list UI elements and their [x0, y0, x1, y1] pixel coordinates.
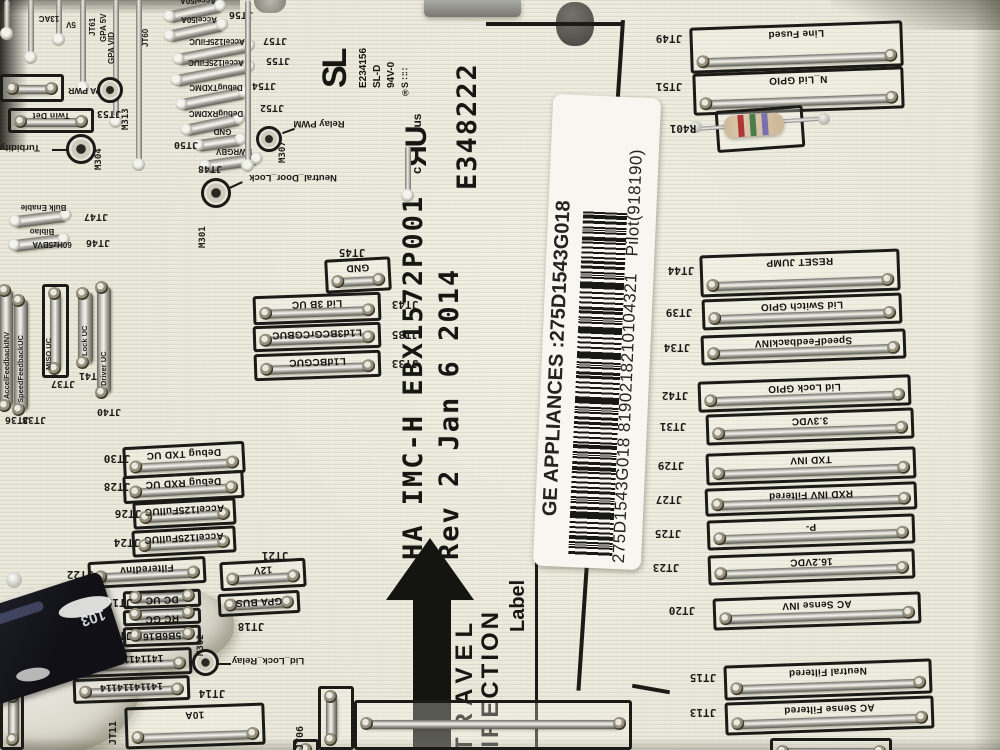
tinned-wire	[4, 0, 10, 34]
label-callout: Label	[507, 574, 533, 632]
connector-JT15: Neutral Filtered	[723, 658, 932, 700]
relay-pad-M301	[201, 178, 231, 208]
ul-file-number: E348222	[452, 62, 488, 190]
ul-mark-us: us	[410, 114, 424, 128]
connector-ref: JT34	[658, 341, 696, 354]
jumper-ref: JT47	[80, 211, 112, 222]
relay-label: Lid_Lock_Relay	[222, 655, 314, 666]
vertical-jumper-ref: JT40	[92, 406, 126, 417]
jumper-label: 60Hz5BVA	[12, 240, 92, 249]
barcode-sticker: GE APPLIANCES :275D1543G018 275D1543G018…	[533, 94, 661, 570]
mfr-date-code: S ∷∷	[400, 42, 414, 88]
jumper-ref: JT55	[262, 55, 294, 66]
solder-pad-top	[254, 0, 286, 13]
wire-label: JT61	[88, 2, 98, 36]
border-line-horizontal	[486, 22, 623, 26]
jumper-label: Biblao	[10, 227, 74, 236]
connector-ref: JT24	[108, 536, 146, 549]
vertical-jumper-label: AccelFeedbackINV	[2, 301, 13, 399]
connector-JT34: SpeedFeedbackINV	[701, 328, 907, 365]
wire-label: JT60	[141, 13, 151, 47]
tinned-wire	[405, 146, 411, 196]
jumper-ref: JT52	[256, 102, 288, 113]
connector-JT43: Lid 3B UC	[253, 292, 382, 325]
jumper-label: Accel50A	[165, 0, 231, 5]
jumper-label: Accel50A	[165, 15, 233, 24]
relay-ref: M301	[198, 212, 210, 248]
connector-ref: JT15	[684, 671, 722, 684]
capacitor-sheen	[0, 600, 45, 631]
connector-JT44: RESET JUMP	[699, 249, 900, 298]
relay-label-line	[218, 663, 231, 665]
relay-pad-M304	[66, 134, 96, 164]
connector-JT21: 12V	[219, 558, 306, 591]
connector-ref: JT20	[663, 604, 701, 617]
connector-ref: JT18	[232, 620, 270, 633]
jumper-ref: JT48	[194, 163, 226, 174]
partial-connector	[318, 686, 354, 750]
registered-icon: ®	[402, 88, 409, 98]
connector-label: 10A	[127, 707, 261, 723]
board-model-text: HA IMC-H EBX1572P001	[398, 180, 436, 560]
connector-ref: JT44	[662, 264, 700, 277]
jumper-ref: JT57	[259, 35, 291, 46]
resistor-band	[761, 113, 769, 135]
connector-ref: JT31	[654, 420, 692, 433]
wire-label: 5V	[60, 20, 82, 29]
connector-label: Twin Det	[11, 111, 91, 121]
connector-ref: JT42	[656, 389, 694, 402]
connector-pin-bar	[11, 85, 53, 94]
vertical-jumper-label: MISO UC	[44, 296, 55, 370]
connector-JT29: TXD INV	[706, 446, 917, 485]
connector-pin-bar	[326, 695, 337, 741]
jumper-label: PWRGBV	[201, 147, 267, 156]
connector-JT31: 3.3VDC	[706, 407, 915, 445]
tinned-wire	[80, 0, 86, 88]
vertical-jumper-ref: JT38	[17, 414, 51, 425]
connector-pin-bar	[136, 730, 254, 743]
relay-pad-M313	[97, 77, 123, 103]
metal-bracket	[424, 0, 521, 17]
connector-ref: JT23	[647, 561, 685, 574]
relay-label: Neutral_Door_Lock	[234, 172, 352, 183]
connector-ref: JT39	[660, 306, 698, 319]
partial-connector	[354, 700, 632, 750]
connector-JT14: 14114114114	[73, 675, 191, 704]
travel-arrow-head	[386, 538, 474, 600]
connector-ref: JT27	[650, 493, 688, 506]
sticker-pilot: Pilot(918190)	[622, 149, 646, 257]
connector-JT23: 16.2VDC	[708, 548, 916, 585]
board-rev-text: Rev 2 Jan 6 2014	[434, 272, 468, 560]
connector-ref: JT14	[193, 687, 231, 700]
resistor-band	[749, 114, 757, 136]
resistor-ref: R401	[664, 122, 702, 135]
tinned-wire	[245, 0, 251, 166]
tinned-wire	[28, 0, 34, 58]
resistor-band	[737, 115, 745, 137]
connector-JT26: Accel125FullUC	[132, 497, 236, 529]
connector-JT45: GND	[324, 256, 392, 293]
mfr-logo: SL	[316, 14, 362, 88]
solder-dot	[6, 572, 22, 588]
vertical-jumper-label: Lock UC	[80, 304, 91, 356]
connector-label: RC GC	[126, 612, 198, 626]
connector-label: N_Lid GPIO	[695, 70, 900, 88]
border-line-hook	[632, 684, 670, 695]
relay-ref: M302	[196, 620, 208, 656]
jumper-label: DebugTXDMC	[177, 83, 255, 92]
connector-ref: JT45	[333, 246, 371, 259]
connector-JT25: P-	[707, 513, 916, 550]
connector-ref: JT43	[386, 298, 424, 311]
connector-JT13: AC Sense Filtered	[724, 695, 934, 735]
jumper-label: DebugRXDMC	[182, 109, 250, 118]
circuit-board-photo: HA IMC-H EBX1572P001 Rev 2 Jan 6 2014 E3…	[0, 0, 1000, 750]
connector-ref: JT25	[649, 527, 687, 540]
connector-JT42: Lid Lock GPIO	[698, 374, 912, 412]
jumper-label: Bulk Enable	[11, 203, 76, 212]
jumper-label: GND	[194, 127, 251, 136]
wire-jumper	[12, 210, 68, 229]
connector-JT18: GPA BUS	[217, 590, 300, 617]
connector-label: Neutral Filtered	[727, 662, 929, 680]
connector-ref: JT11	[108, 707, 120, 745]
wire-label: GPA VID	[107, 20, 117, 64]
ul-mark-c: c	[409, 167, 424, 174]
relay-label-line	[52, 149, 67, 151]
connector-pin-bar	[336, 276, 380, 287]
connector-ref: JT33	[386, 357, 424, 370]
connector-ref: JT28	[98, 480, 136, 493]
vertical-jumper-label: Driver UC	[99, 298, 110, 386]
resistor-lead-ball-right	[818, 113, 830, 125]
connector-JT24: Accel125FullUC	[131, 525, 236, 557]
connector-label: RESET JUMP	[702, 253, 896, 271]
pad-box-ref: JT53	[94, 108, 124, 119]
relay-label: Relay PWM	[286, 118, 352, 129]
connector-JT27: RXD INV Filtered	[705, 481, 918, 516]
resistor-body	[723, 112, 784, 138]
connector-ref: JT21	[256, 549, 294, 562]
connector-unrefd: RC GC	[123, 608, 202, 627]
connector-ref: JT51	[650, 80, 688, 93]
connector-pin-bar	[701, 52, 892, 68]
connector-pin-bar	[365, 720, 621, 729]
jumper-ref: JT50	[170, 139, 202, 150]
connector-ref: JT30	[98, 452, 136, 465]
connector-JT22: FilteredInv	[87, 556, 206, 589]
connector-JT49: Line Fused	[689, 20, 903, 73]
connector-ref: JT35	[386, 328, 424, 341]
pad-box-gpa-pwr	[0, 74, 64, 102]
connector-label: Line Fused	[692, 24, 899, 42]
partial-connector	[770, 738, 892, 750]
connector-ref: JT13	[684, 706, 722, 719]
mfr-type-code: SL-D	[372, 34, 387, 88]
connector-pin-bar	[711, 276, 889, 291]
relay-ref: M313	[121, 94, 133, 130]
connector-JT33: L1dBCGUC	[254, 350, 382, 381]
mfr-cert-number: E234156	[358, 18, 373, 88]
pad-box-twin-det: Twin Det	[8, 108, 94, 133]
mfr-flammability-rating: 94V-0	[386, 28, 401, 88]
connector-JT20: AC Sense INV	[713, 591, 922, 630]
connector-ref: JT29	[652, 459, 690, 472]
connector-pin-bar	[735, 679, 921, 694]
connector-ref: JT06	[295, 712, 307, 750]
relay-ref: M304	[94, 134, 106, 170]
shadow-right-edge	[972, 0, 1000, 750]
relay-label: Turbidity Enable	[0, 142, 58, 153]
vertical-jumper-label: SpeedFeedbackUC	[16, 311, 27, 403]
connector-JT35: L1d3BCGrCGBUC	[253, 322, 382, 352]
connector-ref: JT26	[109, 507, 147, 520]
connector-ref: JT49	[650, 32, 688, 45]
connector-JT39: Lid Switch GPIO	[702, 293, 903, 331]
connector-pin-bar	[8, 695, 19, 741]
connector-JT11: 10A	[124, 703, 265, 750]
